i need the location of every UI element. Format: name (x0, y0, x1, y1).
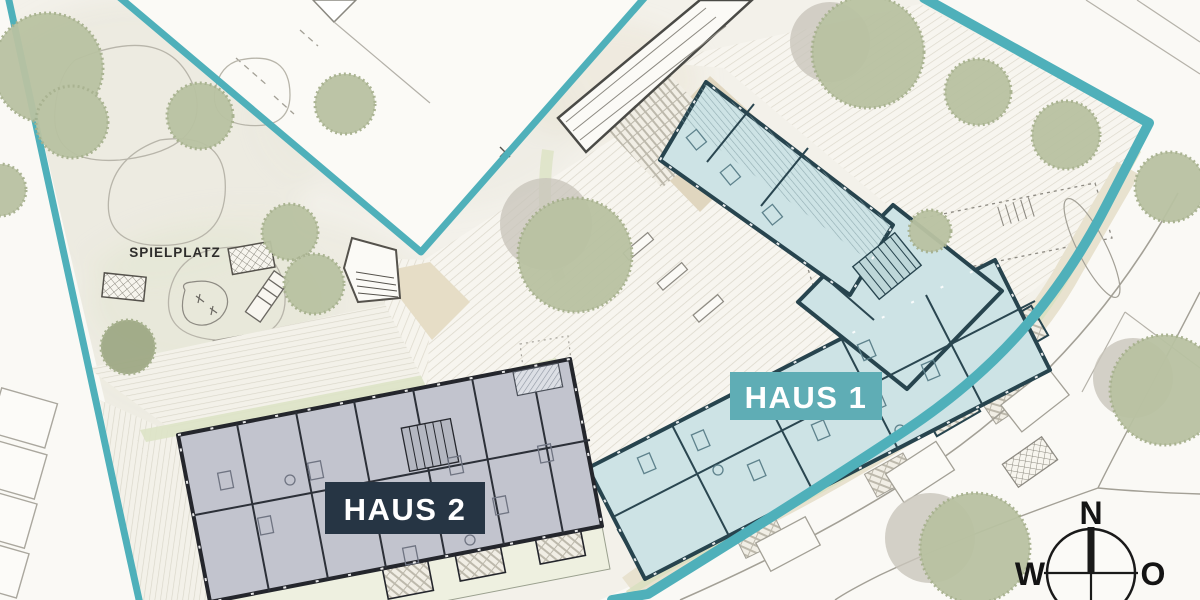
compass-east-label: O (1141, 556, 1166, 592)
haus2-label: HAUS 2 (325, 482, 485, 534)
tree (167, 83, 233, 149)
tree (1032, 101, 1100, 169)
tree (262, 204, 318, 260)
tree (36, 86, 108, 158)
tree (920, 493, 1030, 600)
site-plan-drawing: SPIELPLATZ HAUS 1 HAUS 2 N W O (0, 0, 1200, 600)
tree (101, 320, 155, 374)
playground-label: SPIELPLATZ (129, 245, 221, 260)
sandbox-1 (102, 273, 146, 301)
compass-north-label: N (1079, 495, 1102, 531)
site-plan-page: SPIELPLATZ HAUS 1 HAUS 2 N W O (0, 0, 1200, 600)
tree-courtyard (518, 198, 632, 312)
haus1-label-text: HAUS 1 (745, 380, 868, 415)
tree (812, 0, 924, 108)
tree (909, 210, 951, 252)
haus2-label-text: HAUS 2 (344, 492, 467, 527)
tree (284, 254, 344, 314)
haus2-stair-core (401, 419, 458, 472)
compass-west-label: W (1015, 556, 1046, 592)
haus1-label: HAUS 1 (730, 372, 882, 420)
tree (945, 59, 1011, 125)
tree (315, 74, 375, 134)
